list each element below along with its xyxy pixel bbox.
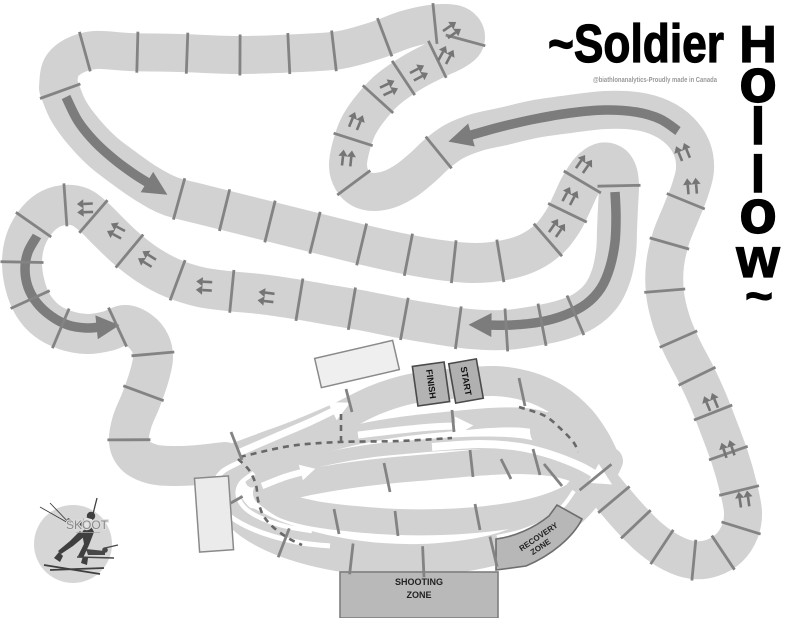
svg-text:~: ~	[745, 270, 773, 323]
svg-text:SKOOT: SKOOT	[66, 518, 109, 532]
svg-text:ZONE: ZONE	[406, 590, 431, 600]
svg-text:SHOOTING: SHOOTING	[395, 577, 443, 587]
svg-text:~Soldier: ~Soldier	[548, 14, 724, 74]
svg-text:@biathlonanalytics-Proudly mad: @biathlonanalytics-Proudly made in Canad…	[593, 75, 718, 84]
